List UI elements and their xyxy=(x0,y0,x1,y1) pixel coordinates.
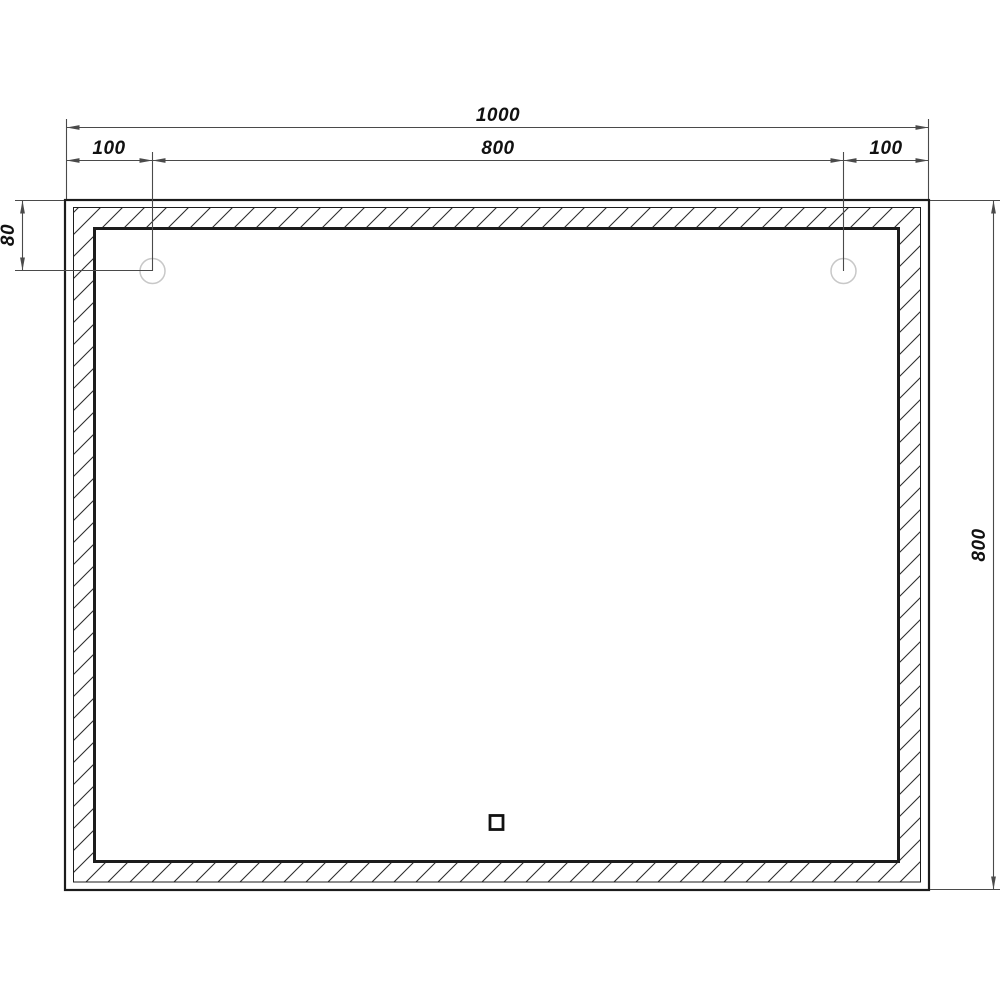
label-height-top-offset: 80 xyxy=(0,224,19,246)
label-width-total: 1000 xyxy=(476,105,520,126)
outer-edge-rect xyxy=(65,200,929,890)
dimension-lines xyxy=(15,119,1000,890)
mount-points xyxy=(140,259,856,284)
inset-edge-rect xyxy=(74,208,921,883)
inner-frame-rect xyxy=(95,229,899,862)
led-band-hatch xyxy=(74,208,921,883)
technical-drawing-canvas: 1000 100 800 100 80 800 xyxy=(0,0,1000,1000)
label-height-total: 800 xyxy=(969,528,990,561)
label-width-left-offset: 100 xyxy=(92,138,125,159)
dimension-drawing: 1000 100 800 100 80 800 xyxy=(0,0,1000,1000)
label-width-right-offset: 100 xyxy=(869,138,902,159)
mirror-outline xyxy=(65,200,929,890)
touch-sensor-square xyxy=(490,816,503,830)
dimension-labels: 1000 100 800 100 80 800 xyxy=(0,105,990,562)
label-width-center-span: 800 xyxy=(481,138,514,159)
